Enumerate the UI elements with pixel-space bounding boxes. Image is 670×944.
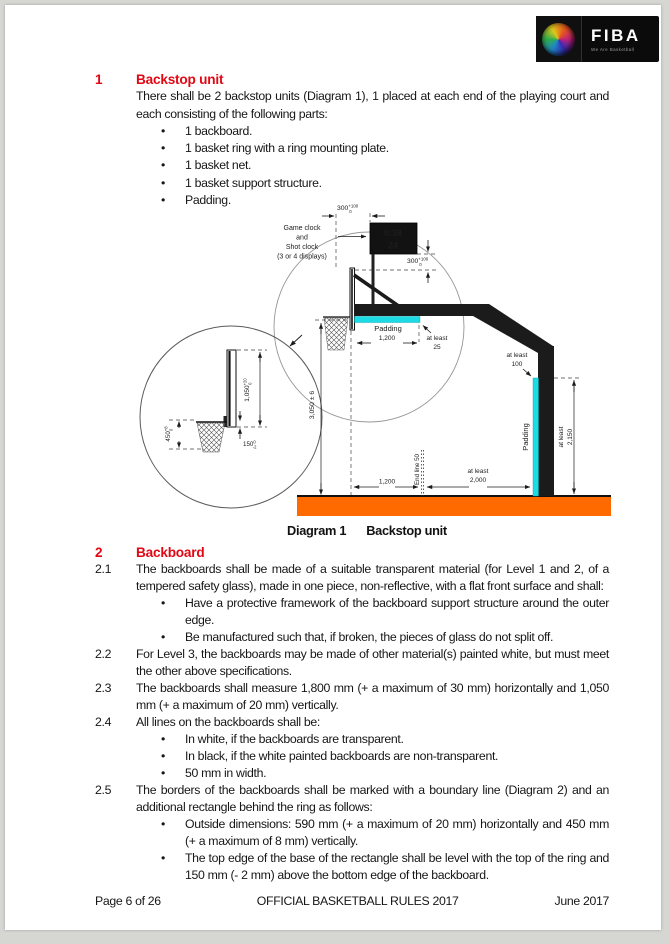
footer-page-number: Page 6 of 26: [95, 893, 161, 910]
fiba-brand: FIBA: [591, 27, 641, 44]
svg-text:2,000: 2,000: [470, 477, 487, 484]
svg-text:(3 or 4 displays): (3 or 4 displays): [277, 254, 327, 261]
svg-text:450+80: 450+80: [164, 426, 174, 442]
bullet-item: 1 basket net.: [136, 157, 609, 174]
section-1-number: 1: [95, 71, 136, 88]
inset-leader-arrow: [290, 335, 302, 346]
fiba-logo-text: FIBA We Are Basketball: [582, 27, 641, 52]
svg-text:1,200: 1,200: [379, 335, 396, 342]
clock-pole: [372, 254, 375, 304]
fiba-globe-box: [536, 16, 582, 62]
section-1-title: Backstop unit: [136, 71, 609, 88]
bullet-item: Padding.: [136, 192, 609, 209]
arm-padding-label: Padding: [374, 324, 402, 333]
bullet-item: 1 basket support structure.: [136, 175, 609, 192]
shot-clock-digits: 24: [388, 241, 398, 251]
dim-backboard-1050: 1,050+200: [243, 352, 260, 426]
rule-number: 2.4: [95, 714, 136, 782]
rule-number: 2.3: [95, 680, 136, 714]
footer-date: June 2017: [555, 893, 609, 910]
diagram-caption-label: Diagram 1: [287, 522, 346, 539]
rule-number: 2.5: [95, 782, 136, 884]
end-line: End line 50: [414, 450, 424, 496]
svg-text:100: 100: [512, 361, 523, 368]
rule-text: For Level 3, the backboards may be made …: [136, 646, 609, 680]
support-brace: [354, 275, 400, 307]
rule-item-2-5: 2.5 The borders of the backboards shall …: [95, 782, 661, 884]
pole-padding: [533, 378, 539, 496]
bullet-item: Be manufactured such that, if broken, th…: [136, 629, 609, 646]
rule-number: 2.1: [95, 561, 136, 646]
fiba-tagline: We Are Basketball: [591, 47, 641, 52]
pole-padding-label: Padding: [521, 424, 530, 452]
svg-text:25: 25: [433, 344, 441, 351]
svg-text:2,150: 2,150: [567, 429, 574, 446]
page-content: 1 Backstop unit There shall be 2 backsto…: [5, 71, 661, 884]
arm-padding: [355, 317, 421, 323]
dim-at-least-25: at least 25: [423, 326, 448, 352]
svg-text:Game clock: Game clock: [284, 225, 321, 232]
dim-arm-1200: 1,200: [357, 335, 417, 343]
section-1-body: There shall be 2 backstop units (Diagram…: [95, 88, 661, 209]
backstop-unit-diagram: 300+1000 0:38 24 Game clock and Shot clo…: [139, 200, 614, 520]
section-1-bullets: 1 backboard. 1 basket ring with a ring m…: [136, 123, 609, 209]
bullet-item: 1 basket ring with a ring mounting plate…: [136, 140, 609, 157]
rule-text: All lines on the backboards shall be:: [136, 714, 609, 731]
bullet-item: The top edge of the base of the rectangl…: [136, 850, 609, 884]
page-footer: Page 6 of 26 OFFICIAL BASKETBALL RULES 2…: [95, 893, 609, 910]
bullet-item: In white, if the backboards are transpar…: [136, 731, 609, 748]
basketball-globe-icon: [542, 23, 575, 56]
bullet-item: Have a protective framework of the backb…: [136, 595, 609, 629]
game-clock-digits: 0:38: [384, 228, 402, 238]
inset-net: [197, 423, 225, 452]
dim-at-least-100: at least 100: [507, 352, 531, 376]
section-2-heading: 2 Backboard: [95, 544, 661, 561]
svg-text:1,200: 1,200: [379, 479, 396, 486]
rule-text: The backboards shall be made of a suitab…: [136, 561, 609, 595]
svg-text:1500-2: 1500-2: [243, 440, 257, 450]
detail-circle-main: [274, 232, 464, 422]
bullet-item: Outside dimensions: 590 mm (+ a maximum …: [136, 816, 609, 850]
bullet-item: 50 mm in width.: [136, 765, 609, 782]
backboard-inset: 1,050+200 450+80 1500-2: [164, 350, 267, 452]
rule-item-2-3: 2.3 The backboards shall measure 1,800 m…: [95, 680, 661, 714]
section-2-title: Backboard: [136, 544, 609, 561]
svg-text:at least: at least: [507, 352, 528, 359]
diagram-caption: Diagram 1 Backstop unit: [287, 522, 661, 539]
game-clock-label: Game clock and Shot clock (3 or 4 displa…: [277, 225, 366, 261]
rule-item-2-4: 2.4 All lines on the backboards shall be…: [95, 714, 661, 782]
dim-floor-1200: 1,200: [354, 479, 418, 488]
svg-text:at least: at least: [427, 335, 448, 342]
dim-floor-2000: at least 2,000: [427, 468, 530, 487]
document-page: FIBA We Are Basketball 1 Backstop unit T…: [5, 5, 661, 930]
dim-pole-2150: at least 2,150: [558, 380, 574, 494]
svg-text:End line 50: End line 50: [414, 454, 421, 486]
rule-item-2-2: 2.2 For Level 3, the backboards may be m…: [95, 646, 661, 680]
support-arm: [354, 304, 473, 316]
support-pole: [538, 346, 554, 496]
svg-text:300+1000: 300+1000: [407, 257, 429, 267]
svg-text:1,050+200: 1,050+200: [243, 378, 253, 402]
basket-net: [324, 318, 348, 350]
rule-number: 2.2: [95, 646, 136, 680]
section-2-number: 2: [95, 544, 136, 561]
dim-ring-to-bottom-150: 1500-2: [240, 411, 257, 450]
svg-text:at least: at least: [558, 427, 565, 448]
rule-text: The borders of the backboards shall be m…: [136, 782, 609, 816]
rule-item-2-1: 2.1 The backboards shall be made of a su…: [95, 561, 661, 646]
svg-text:Shot clock: Shot clock: [286, 244, 319, 251]
floor: [297, 496, 611, 516]
svg-text:3,050 ± 6: 3,050 ± 6: [309, 391, 316, 420]
svg-text:at least: at least: [468, 468, 489, 475]
dim-ring-height-3050: 3,050 ± 6: [309, 323, 321, 495]
diagram-caption-title: Backstop unit: [366, 522, 447, 539]
fiba-logo: FIBA We Are Basketball: [536, 16, 659, 62]
section-1-intro: There shall be 2 backstop units (Diagram…: [136, 88, 609, 123]
backstop-structure: [323, 268, 554, 496]
footer-document-title: OFFICIAL BASKETBALL RULES 2017: [257, 893, 459, 910]
rule-text: The backboards shall measure 1,800 mm (+…: [136, 680, 609, 714]
dim-rectangle-450: 450+80: [164, 422, 179, 448]
bullet-item: 1 backboard.: [136, 123, 609, 140]
svg-text:and: and: [296, 235, 308, 242]
bullet-item: In black, if the white painted backboard…: [136, 748, 609, 765]
section-1-heading: 1 Backstop unit: [95, 71, 661, 88]
inset-backboard: [227, 350, 236, 427]
